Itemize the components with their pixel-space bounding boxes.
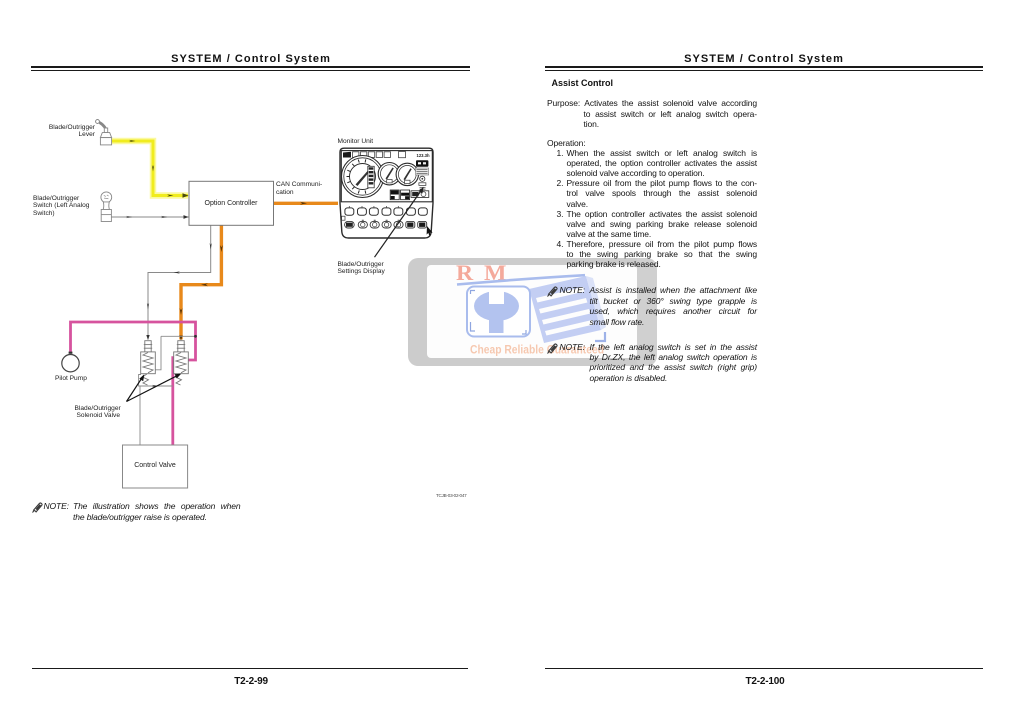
svg-text:123.3h: 123.3h [417,153,430,158]
